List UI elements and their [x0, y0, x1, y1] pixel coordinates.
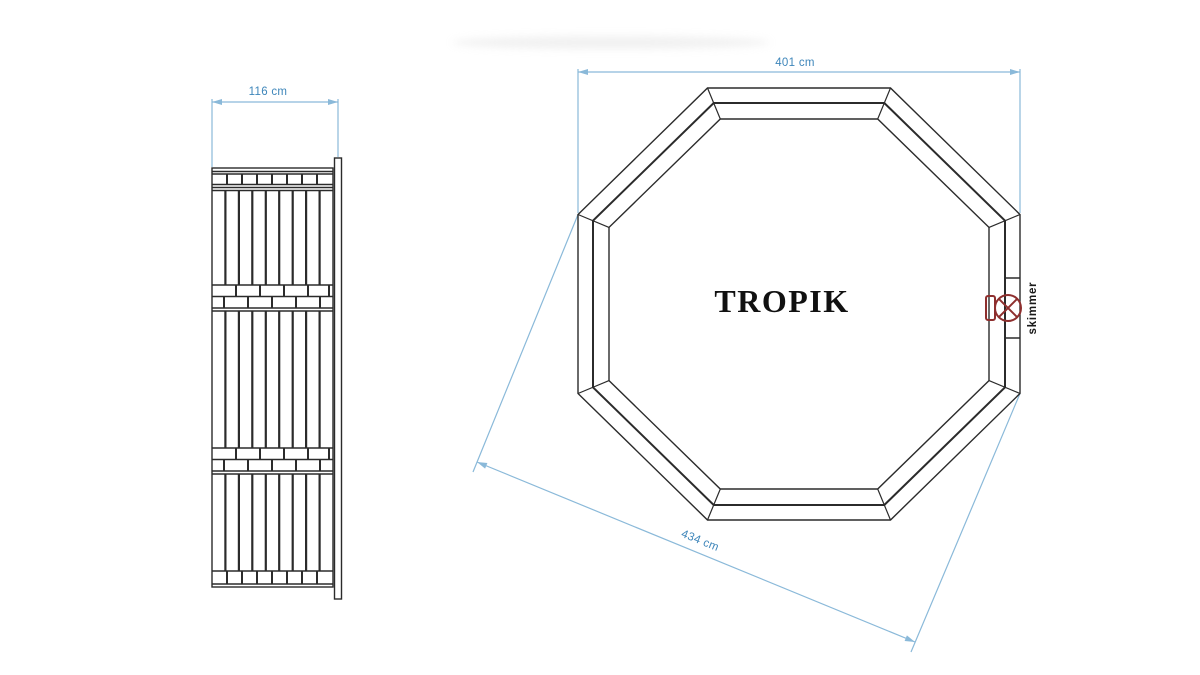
side-view-drawing: [212, 158, 342, 599]
pool-line-art: [0, 0, 1200, 675]
side-view-post: [335, 158, 342, 599]
pool-model-name: TROPIK: [682, 283, 882, 320]
dimension-116cm-lines: [212, 99, 338, 167]
top-width-dimension-label: 401 cm: [755, 57, 835, 69]
technical-drawing-canvas: 116 cm 401 cm 434 cm TROPIK skimmer: [0, 0, 1200, 675]
skimmer-label: skimmer: [1026, 268, 1040, 348]
side-width-dimension-label: 116 cm: [236, 86, 300, 98]
